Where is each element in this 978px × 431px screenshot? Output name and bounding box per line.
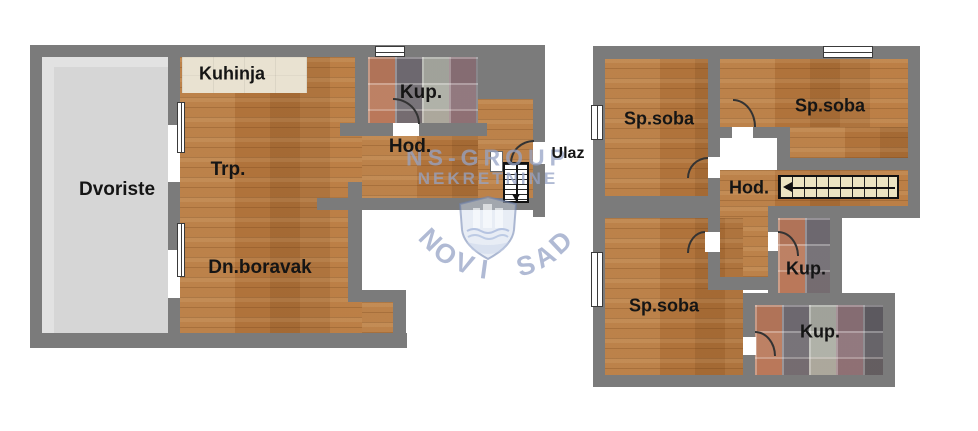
window	[375, 46, 405, 57]
wall	[393, 290, 406, 348]
door-opening-bedroom-1	[708, 157, 720, 178]
wall	[355, 57, 368, 123]
stairs-left-icon	[778, 175, 899, 199]
stairs-down-icon	[503, 162, 529, 203]
wall	[593, 196, 720, 218]
door-opening-bedroom-3	[705, 232, 720, 252]
floor-living-dining	[180, 57, 362, 333]
watermark-city-letter: A	[529, 238, 562, 275]
wall	[708, 218, 720, 232]
room-label-kup-2: Kup.	[800, 322, 840, 343]
wall	[30, 45, 42, 348]
room-label-sp-soba-2: Sp.soba	[795, 96, 865, 117]
room-label-trp: Trp.	[211, 159, 246, 181]
wall	[348, 182, 362, 292]
window	[177, 102, 185, 153]
window	[591, 252, 603, 307]
window	[177, 223, 185, 277]
wall	[743, 305, 755, 337]
door-opening-bedroom-2	[732, 127, 753, 139]
room-label-hod: Hod.	[389, 136, 431, 158]
wall	[743, 293, 883, 305]
floor-living-bump	[362, 302, 393, 333]
watermark-city-letter: D	[544, 225, 579, 261]
window	[823, 46, 873, 58]
floorplan-canvas: Dvoriste Kuhinja Kup. Hod. Trp. Dn.borav…	[0, 0, 978, 431]
door-opening-bathroom-1	[768, 232, 778, 251]
watermark-city-letter: V	[450, 247, 478, 282]
room-label-kup: Kup.	[400, 82, 442, 104]
wall	[777, 158, 920, 170]
watermark-city-letter: O	[428, 235, 463, 272]
room-label-ulaz: Ulaz	[552, 145, 585, 163]
wall	[743, 355, 755, 377]
wall	[830, 206, 842, 305]
floor-bedroom-2b	[790, 127, 908, 158]
wall	[708, 252, 720, 277]
wall	[30, 333, 407, 348]
wall	[883, 293, 895, 387]
wall	[708, 277, 768, 290]
watermark-city-letter: N	[412, 222, 448, 258]
room-label-hod-upper: Hod.	[729, 178, 769, 199]
room-label-kup-1: Kup.	[786, 259, 826, 280]
wall	[478, 45, 545, 99]
wall	[768, 206, 920, 218]
door-opening-bathroom	[393, 123, 419, 136]
watermark-city-letter: S	[513, 249, 540, 284]
wall	[908, 46, 920, 218]
door-opening-entrance	[533, 142, 546, 164]
window	[591, 105, 603, 140]
room-label-kuhinja: Kuhinja	[199, 64, 265, 85]
wall	[708, 57, 720, 157]
room-label-sp-soba-1: Sp.soba	[624, 109, 694, 130]
door-leaf	[490, 151, 503, 172]
wall	[708, 178, 720, 198]
room-label-dvoriste: Dvoriste	[79, 179, 155, 201]
wall	[768, 206, 778, 232]
room-label-dn-boravak: Dn.boravak	[208, 257, 311, 279]
watermark-city-letter: I	[478, 254, 490, 286]
room-label-sp-soba-3: Sp.soba	[629, 296, 699, 317]
wall	[30, 45, 545, 57]
